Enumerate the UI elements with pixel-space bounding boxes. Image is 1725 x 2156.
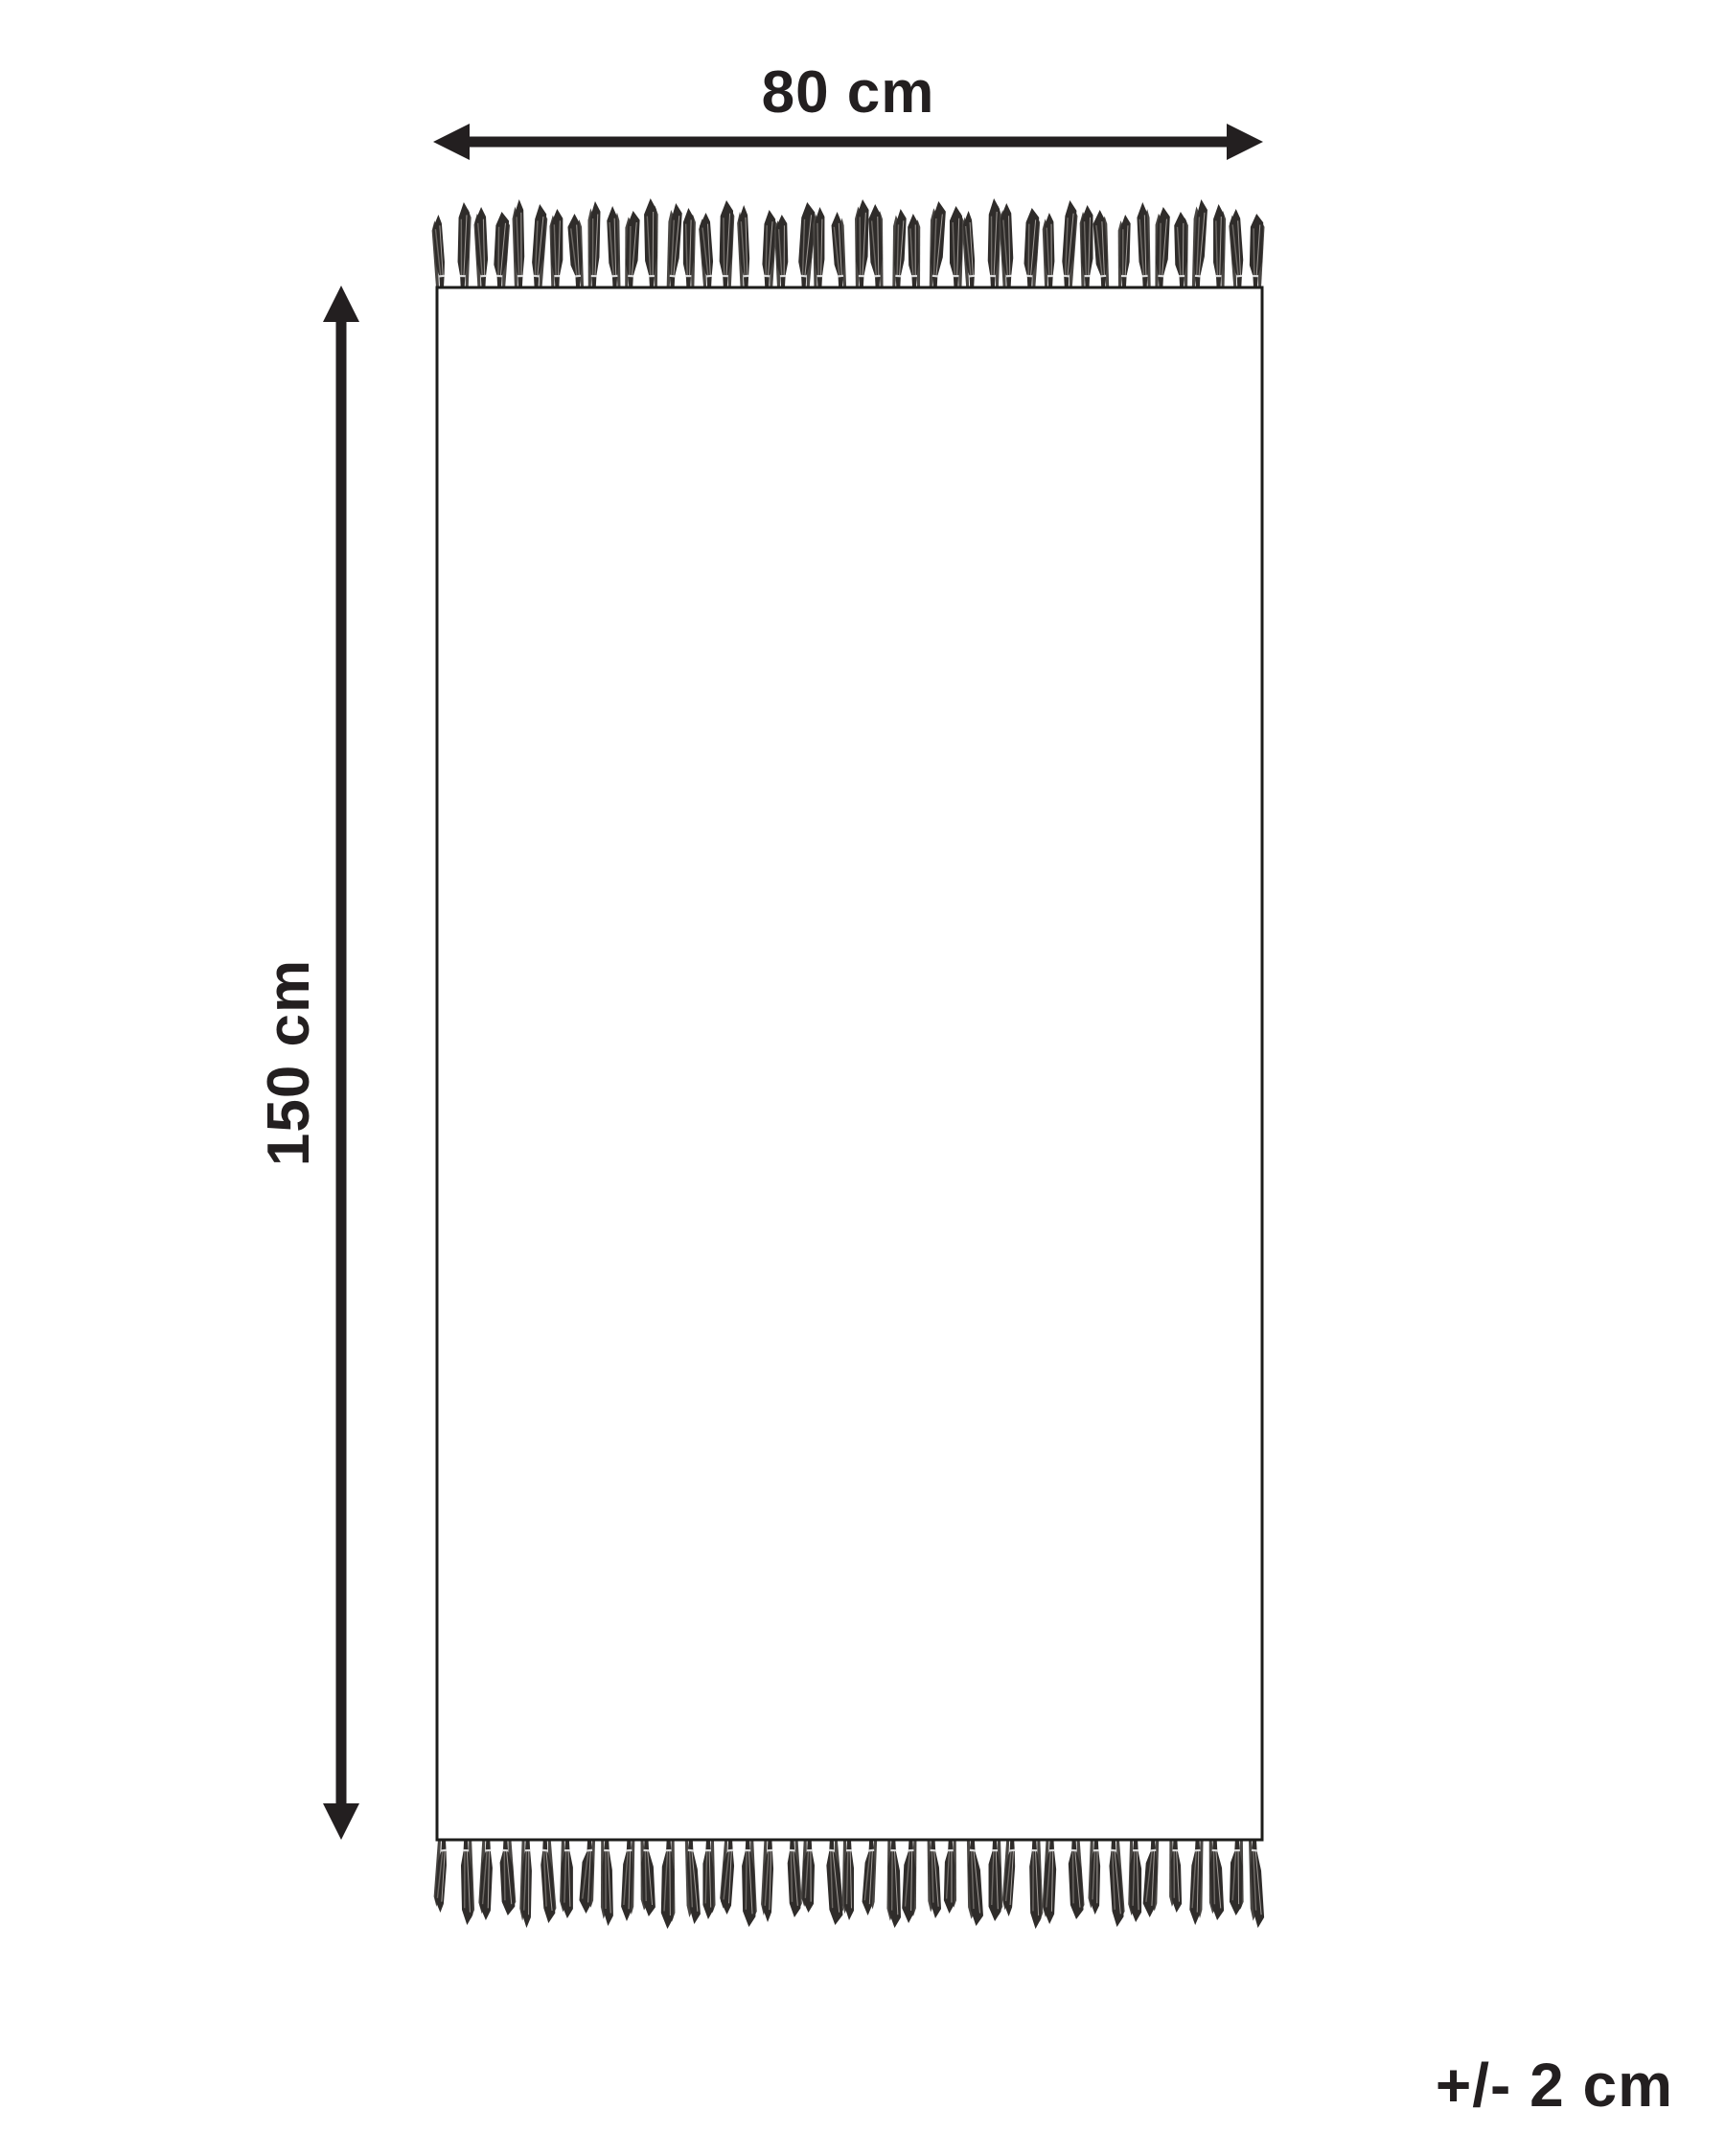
width-arrow-right-head-icon: [1227, 124, 1263, 160]
width-dimension-arrow: [433, 124, 1263, 160]
width-dimension-label: 80 cm: [433, 61, 1263, 125]
tolerance-label: +/- 2 cm: [1436, 2053, 1673, 2118]
height-dimension-arrow: [323, 286, 359, 1840]
rug-dimension-diagram-page: { "diagram": { "width_label": "80 cm", "…: [0, 0, 1725, 2156]
rug-body: [437, 287, 1262, 1840]
top-fringe-tassels: [432, 198, 1265, 287]
height-dimension-label: 150 cm: [258, 959, 321, 1166]
height-arrow-bottom-head-icon: [323, 1803, 359, 1840]
bottom-fringe-tassels: [434, 1840, 1264, 1929]
height-arrow-top-head-icon: [323, 286, 359, 322]
width-arrow-left-head-icon: [433, 124, 470, 160]
